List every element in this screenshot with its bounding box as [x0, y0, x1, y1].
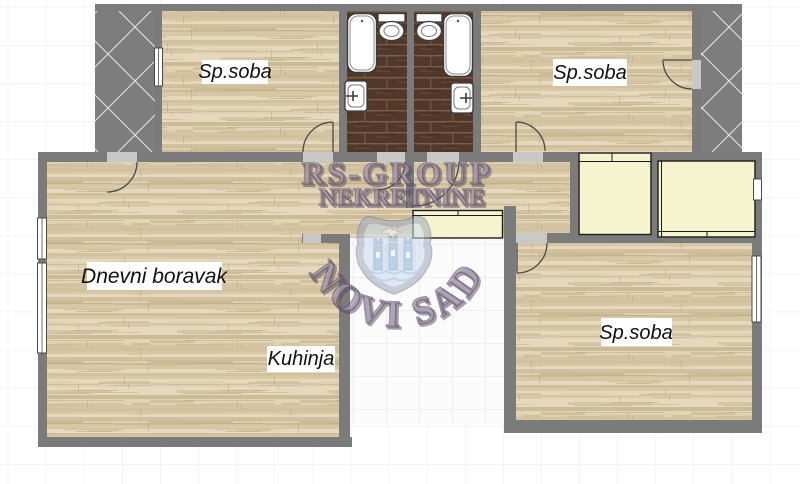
svg-text:NEKRETNINE: NEKRETNINE — [319, 185, 485, 211]
svg-text:Kuhinja: Kuhinja — [268, 348, 335, 370]
svg-text:Dnevni boravak: Dnevni boravak — [81, 265, 228, 288]
svg-text:Sp.soba: Sp.soba — [599, 322, 672, 344]
svg-text:Sp.soba: Sp.soba — [553, 62, 626, 84]
svg-text:Sp.soba: Sp.soba — [198, 61, 271, 83]
